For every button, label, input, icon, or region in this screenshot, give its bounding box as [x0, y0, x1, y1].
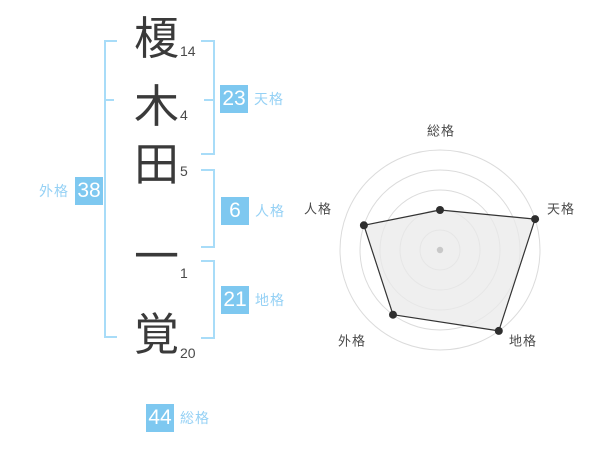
radar-vertex-dot [389, 311, 397, 319]
bracket-tick [104, 336, 117, 338]
bracket-tick [204, 99, 214, 101]
jinkaku-label: 人格 [255, 201, 285, 221]
bracket-tick [201, 337, 214, 339]
radar-axis-label: 総格 [427, 124, 455, 139]
bracket-line [213, 169, 215, 248]
radar-vertex-dot [495, 327, 503, 335]
stroke-count: 20 [180, 345, 204, 361]
name-character-row: 田 5 [134, 142, 174, 187]
name-character: 田 [134, 142, 174, 187]
chikaku-badge-row: 21 地格 [221, 286, 285, 314]
jinkaku-value-badge: 6 [221, 197, 249, 225]
tenkaku-label: 天格 [254, 89, 284, 109]
gaikaku-value-badge: 38 [75, 177, 103, 205]
soukaku-label: 総格 [180, 408, 210, 428]
soukaku-badge-row: 44 総格 [146, 404, 210, 432]
bracket-tick [201, 246, 214, 248]
gaikaku-bracket [104, 40, 118, 338]
name-character: 覚 [134, 312, 174, 357]
bracket-line [213, 260, 215, 339]
name-character-row: 木 4 [134, 84, 174, 129]
chikaku-bracket [201, 260, 215, 339]
radar-chart-container: 総格天格地格外格人格 [300, 110, 590, 370]
tenkaku-bracket [201, 40, 215, 155]
name-analysis-panel: 榎 14 木 4 田 5 一 1 覚 20 23 [0, 0, 600, 470]
radar-vertex-dot [436, 206, 444, 214]
name-character: 一 [134, 234, 174, 279]
jinkaku-bracket [201, 169, 215, 248]
gaikaku-label: 外格 [39, 181, 69, 201]
name-character: 榎 [134, 16, 174, 61]
bracket-tick [104, 99, 114, 101]
radar-center-dot [437, 247, 443, 253]
bracket-tick [104, 40, 117, 42]
jinkaku-badge-row: 6 人格 [221, 197, 285, 225]
gaikaku-badge-row: 38 外格 [39, 177, 103, 205]
soukaku-value-badge: 44 [146, 404, 174, 432]
radar-chart: 総格天格地格外格人格 [300, 110, 590, 370]
bracket-line [213, 40, 215, 155]
radar-axis-label: 天格 [547, 202, 575, 217]
tenkaku-badge-row: 23 天格 [220, 85, 284, 113]
radar-vertex-dot [531, 215, 539, 223]
name-character: 木 [134, 84, 174, 129]
name-character-row: 一 1 [134, 234, 174, 279]
bracket-tick [201, 169, 214, 171]
radar-axis-label: 外格 [338, 334, 366, 349]
bracket-tick [201, 40, 214, 42]
bracket-tick [201, 153, 214, 155]
radar-axis-label: 地格 [509, 334, 537, 349]
name-character-row: 覚 20 [134, 312, 174, 357]
radar-vertex-dot [360, 221, 368, 229]
tenkaku-value-badge: 23 [220, 85, 248, 113]
name-character-row: 榎 14 [134, 16, 174, 61]
bracket-tick [201, 260, 214, 262]
chikaku-label: 地格 [255, 290, 285, 310]
radar-axis-label: 人格 [304, 202, 332, 217]
chikaku-value-badge: 21 [221, 286, 249, 314]
bracket-line [104, 40, 106, 338]
